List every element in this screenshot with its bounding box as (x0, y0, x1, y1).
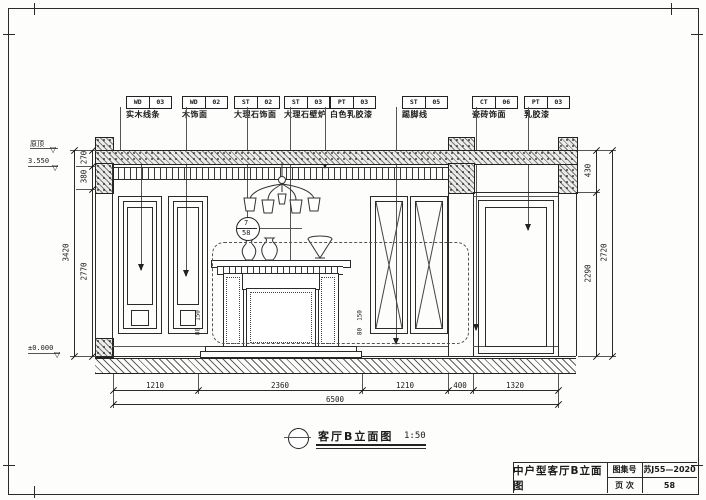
drawing-sheet: WD 03 实木线条 WD 02 木饰面 ST 02 大理石饰面 ST 03 大… (0, 0, 706, 500)
material-code: ST (403, 97, 426, 108)
material-desc: 白色乳胶漆 (330, 109, 373, 120)
material-number: 06 (496, 97, 518, 108)
dim-value: 2290 (584, 254, 593, 294)
border-tick (671, 3, 672, 15)
fireplace-hearth-base (200, 351, 362, 358)
wall-panel-a-base (131, 310, 149, 326)
dim-line-total (113, 404, 558, 405)
rightroom-ceiling-line2 (473, 196, 558, 197)
caption-title: 客厅B立面图 (318, 428, 393, 444)
caption-underline (316, 444, 426, 446)
material-tag: CT 06 (472, 96, 518, 109)
wall-panel-b-inner (177, 207, 199, 305)
rightroom-ceiling-line (473, 192, 558, 193)
material-desc: 大理石饰面 (234, 109, 277, 120)
atlas-label: 图集号 (607, 462, 642, 477)
atlas-number-text: 苏J55—2020 (643, 464, 695, 475)
sheet-title-text: 中户型客厅B立面图 (513, 463, 607, 493)
dim-value: 400 (453, 381, 467, 390)
left-wall-face-line (112, 163, 113, 356)
dim-total-value: 6500 (326, 395, 344, 404)
material-code: PT (331, 97, 354, 108)
leader-line (476, 107, 477, 330)
mid-column (448, 163, 475, 194)
dim-line-bottom (113, 390, 558, 391)
caption-underline-thin (316, 448, 426, 449)
floor-slab (95, 358, 576, 374)
border-tick (34, 3, 35, 15)
material-code: WD (127, 97, 150, 108)
dim-line-left-outer (74, 150, 75, 356)
rightroom-left-face-line (473, 192, 474, 356)
dim-line-right-inner (596, 150, 597, 356)
dim-total-value: 3420 (62, 233, 71, 273)
furniture-dashed-outline (212, 242, 469, 344)
level-label-floor: ±0.000 (28, 344, 53, 352)
dim-value: 1320 (506, 381, 524, 390)
level-triangle-icon: ▽ (52, 164, 58, 172)
sheet-title: 中户型客厅B立面图 (513, 462, 607, 493)
level-label-ceiling: 3.550 (28, 157, 49, 165)
material-code: ST (285, 97, 308, 108)
ceiling-slab (95, 150, 578, 165)
material-number: 03 (354, 97, 376, 108)
dim-value: 2360 (271, 381, 289, 390)
dim-value: 1210 (396, 381, 414, 390)
dim-value: 1210 (146, 381, 164, 390)
material-desc: 踢脚线 (402, 109, 428, 120)
dim-line-right-outer (612, 150, 613, 356)
border-tick (691, 34, 703, 35)
material-tag: WD 03 (126, 96, 172, 109)
dim-line-left-inner (92, 150, 93, 356)
left-wall-outer-line (95, 192, 96, 356)
dim-total-value: 2720 (600, 233, 609, 273)
rightroom-panel-frame (485, 207, 547, 347)
page-number-text: 58 (664, 481, 675, 490)
material-number: 02 (206, 97, 228, 108)
page-label: 页 次 (607, 477, 642, 493)
right-exterior-wall (558, 137, 578, 194)
atlas-label-text: 图集号 (613, 464, 637, 475)
atlas-number: 苏J55—2020 (642, 462, 697, 477)
border-tick (3, 465, 15, 466)
page-number: 58 (642, 477, 697, 493)
chandelier-icon (237, 162, 327, 222)
caption-scale: 1:50 (404, 431, 426, 441)
level-triangle-icon: ▽ (54, 351, 60, 359)
rightroom-right-face-line (558, 192, 559, 356)
detail-number: 7 (244, 219, 248, 227)
material-number: 03 (548, 97, 570, 108)
material-tag: WD 02 (182, 96, 228, 109)
right-wall-outer-line (576, 192, 577, 356)
material-desc: 瓷砖饰面 (472, 109, 506, 120)
wall-panel-a-inner (127, 207, 153, 305)
caption-symbol-icon (288, 428, 309, 449)
material-number: 05 (426, 97, 448, 108)
detail-sheet: 58 (242, 229, 250, 237)
material-tag: PT 03 (330, 96, 376, 109)
material-number: 03 (150, 97, 172, 108)
panel-dim: 80 (195, 322, 202, 342)
dim-value: 430 (584, 151, 593, 191)
material-tag: ST 05 (402, 96, 448, 109)
dim-value: 380 (80, 157, 89, 197)
border-tick (34, 486, 35, 498)
material-number: 02 (258, 97, 280, 108)
material-desc: 实木线条 (126, 109, 160, 120)
border-tick (3, 34, 15, 35)
page-label-text: 页 次 (615, 480, 634, 491)
material-tag: PT 03 (524, 96, 570, 109)
level-triangle-icon: ▽ (50, 146, 56, 154)
material-tag: ST 02 (234, 96, 280, 109)
caption-symbol-line (284, 437, 311, 438)
dim-value: 2770 (80, 252, 89, 292)
